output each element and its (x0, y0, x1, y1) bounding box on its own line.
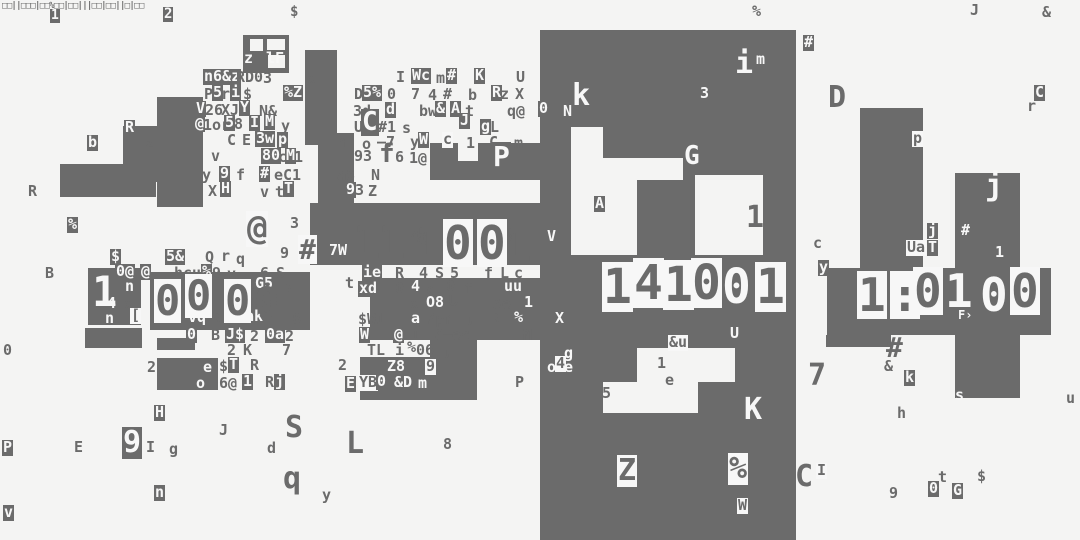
noise-glyph: 0 (395, 281, 404, 297)
noise-glyph: v (3, 505, 14, 521)
panel-digits-glyph: 0 (691, 258, 722, 308)
glitch-block (430, 143, 545, 180)
noise-glyph: n (125, 279, 134, 295)
noise-glyph: J (219, 423, 228, 439)
noise-glyph: 3 (290, 216, 299, 232)
noise-glyph: B (45, 266, 54, 282)
noise-glyph: 1 (657, 356, 666, 372)
noise-glyph: j (274, 374, 285, 390)
noise-glyph: & (884, 359, 893, 375)
noise-glyph: 5 (283, 280, 292, 296)
noise-glyph: X (208, 184, 217, 200)
noise-glyph: 6@ (219, 376, 237, 392)
glitch-block (85, 328, 142, 348)
noise-glyph: % (728, 453, 748, 485)
panel-digits-glyph: 0 (722, 262, 751, 312)
glitch-cutout (603, 158, 637, 255)
noise-glyph: 0 (538, 101, 549, 117)
noise-glyph: q (236, 252, 245, 268)
noise-glyph: B (211, 328, 220, 344)
noise-glyph: D (828, 82, 846, 114)
noise-glyph: 6 (292, 312, 301, 328)
right-digits-glyph: 0 (913, 267, 943, 315)
right-digits-glyph: 0 (980, 271, 1008, 319)
noise-glyph: q (283, 463, 301, 495)
noise-glyph: E (345, 376, 356, 392)
noise-glyph: B (490, 312, 499, 328)
noise-glyph: 5& (165, 249, 185, 265)
noise-glyph: m (418, 376, 427, 392)
noise-glyph: U (516, 70, 525, 86)
noise-glyph: 1 (995, 245, 1004, 261)
noise-glyph: T (927, 240, 938, 256)
noise-glyph: h (897, 406, 906, 422)
noise-glyph: 3w (255, 131, 275, 147)
middle-digits-glyph: 1 (353, 218, 381, 266)
noise-glyph: & (1042, 5, 1051, 21)
noise-glyph: 1@ (409, 151, 427, 167)
noise-glyph: x (307, 72, 316, 88)
noise-glyph: G—ec (434, 328, 470, 344)
noise-glyph: 3 (700, 86, 709, 102)
middle-digits-glyph: 0 (443, 219, 473, 267)
noise-glyph: c (813, 236, 822, 252)
noise-glyph: J (459, 113, 470, 129)
noise-glyph: 93 (354, 149, 372, 165)
noise-glyph: u (443, 346, 452, 362)
right-digits-glyph: 0 (1010, 267, 1040, 315)
noise-glyph: h (337, 135, 346, 151)
noise-glyph: d (267, 441, 276, 457)
noise-glyph: &u (668, 335, 688, 351)
noise-glyph: % (752, 4, 761, 20)
noise-glyph: t (345, 276, 354, 292)
noise-glyph: lF (266, 51, 284, 67)
noise-glyph: K (474, 68, 485, 84)
noise-glyph: % (513, 310, 524, 326)
noise-glyph: P (492, 142, 511, 171)
noise-glyph: c (442, 132, 453, 148)
glitch-screen: □□||□□□|□□%□□|□□|||□□|□□||□|□□12$%J&zlFn… (0, 0, 1080, 540)
noise-glyph: xd (358, 281, 378, 297)
noise-glyph: a (410, 311, 421, 327)
noise-glyph: j (927, 223, 938, 239)
glitch-cutout (603, 382, 698, 413)
noise-glyph: v (260, 185, 269, 201)
noise-glyph: 4 (410, 279, 421, 295)
noise-glyph: R (265, 375, 274, 391)
glitch-cutout (637, 348, 735, 382)
noise-glyph: [ (130, 308, 141, 324)
noise-glyph: 9 (425, 359, 436, 375)
noise-glyph: v (211, 149, 220, 165)
glitch-cutout (571, 127, 603, 255)
noise-glyph: p (912, 131, 923, 147)
noise-glyph: k (904, 370, 915, 386)
noise-glyph: G (952, 483, 963, 499)
noise-glyph: J (970, 3, 979, 19)
noise-glyph: M (264, 114, 275, 130)
noise-glyph: s (955, 388, 964, 404)
noise-glyph: 1 (746, 202, 764, 234)
noise-glyph: k (572, 80, 590, 112)
noise-glyph: r (1027, 99, 1036, 115)
noise-glyph: □□||□□□|□□%□□|□□|||□□|□□||□|□□ (2, 2, 144, 11)
noise-glyph: I (396, 70, 405, 86)
middle-digits-glyph: 1 (504, 221, 532, 269)
noise-glyph: V (547, 229, 556, 245)
panel-digits-glyph: 1 (663, 260, 694, 310)
noise-glyph: m (756, 52, 765, 68)
left-digits-glyph: 0 (254, 281, 279, 325)
noise-glyph: %Z (283, 85, 303, 101)
noise-glyph: y (322, 488, 331, 504)
middle-digits-glyph: 0 (477, 219, 507, 267)
noise-glyph: n (154, 485, 165, 501)
noise-glyph: T (283, 181, 294, 197)
noise-glyph: A (594, 196, 605, 212)
noise-glyph: U (449, 294, 458, 310)
noise-glyph: z (500, 87, 509, 103)
noise-glyph: 8 (443, 437, 452, 453)
glitch-block (60, 164, 156, 197)
left-digits-glyph: 1 (92, 270, 117, 314)
noise-glyph: # (298, 235, 317, 264)
noise-glyph: % (407, 340, 416, 356)
noise-glyph: 6 (395, 150, 404, 166)
noise-glyph: &D (394, 375, 412, 391)
noise-glyph: P (515, 375, 524, 391)
noise-glyph: Z (617, 455, 637, 487)
noise-glyph: C (795, 461, 813, 493)
noise-glyph: X (515, 87, 524, 103)
noise-glyph: R (124, 120, 135, 136)
glitch-cutout (637, 158, 683, 180)
noise-glyph: # (259, 166, 270, 182)
noise-glyph: U (729, 326, 740, 342)
noise-glyph: f (464, 281, 473, 297)
noise-glyph: Y (239, 100, 250, 116)
noise-glyph: t (938, 470, 947, 486)
panel-digits-glyph: 1 (602, 262, 633, 312)
panel-digits-glyph: 4 (633, 258, 664, 308)
noise-glyph: # (803, 35, 814, 51)
noise-glyph: 9 (212, 266, 221, 282)
noise-glyph: b (87, 135, 98, 151)
left-digits-glyph: 0 (224, 279, 251, 323)
noise-glyph: uu (504, 279, 522, 295)
noise-glyph: 0 (3, 343, 12, 359)
noise-glyph: R (28, 184, 37, 200)
noise-glyph: 1 (294, 150, 303, 166)
noise-glyph: z (145, 136, 154, 152)
noise-glyph: G (683, 143, 701, 170)
noise-glyph: 2 (147, 360, 156, 376)
noise-glyph: 7W (328, 243, 348, 259)
noise-glyph: i (735, 48, 753, 80)
left-digits-glyph: 0 (154, 279, 181, 323)
noise-glyph: r (221, 249, 230, 265)
noise-glyph: q@ (507, 104, 525, 120)
noise-glyph: m (514, 136, 523, 152)
noise-glyph: K (744, 394, 762, 426)
noise-glyph: 7 (411, 87, 420, 103)
noise-glyph: L (346, 428, 364, 460)
noise-glyph: RD0 (236, 70, 263, 86)
noise-glyph: Z (368, 184, 377, 200)
noise-glyph: I (816, 463, 827, 479)
panel-digits-glyph: 1 (755, 262, 786, 312)
noise-glyph: 7 (282, 343, 291, 359)
noise-glyph: N (563, 104, 572, 120)
noise-glyph: # (960, 223, 971, 239)
noise-glyph: T (228, 357, 239, 373)
noise-glyph: E (242, 133, 251, 149)
noise-glyph: d (385, 102, 396, 118)
noise-glyph: z (244, 51, 253, 67)
noise-glyph: 7 (808, 360, 826, 392)
noise-glyph: # (446, 68, 457, 84)
noise-glyph: P (2, 440, 13, 456)
noise-glyph: 9 (280, 246, 289, 262)
left-digits-glyph: 0 (185, 274, 212, 318)
noise-glyph: X (555, 311, 564, 327)
noise-glyph: 3 (263, 71, 272, 87)
noise-glyph: 1 (466, 136, 475, 152)
noise-glyph: 3 (355, 183, 364, 199)
noise-glyph: % (67, 217, 78, 233)
noise-glyph: @ (246, 211, 268, 247)
noise-glyph: $ (290, 5, 298, 20)
noise-glyph: e (564, 360, 573, 376)
noise-glyph: u (1066, 391, 1075, 407)
noise-glyph: TL (367, 343, 385, 359)
noise-glyph: o (196, 376, 205, 392)
noise-glyph: W (418, 132, 429, 148)
noise-glyph: j (985, 170, 1003, 202)
noise-glyph: O8 (425, 295, 445, 311)
noise-glyph: f (236, 168, 245, 184)
noise-glyph: f (379, 141, 395, 168)
glitch-block (305, 50, 337, 145)
noise-glyph: C (227, 133, 236, 149)
noise-glyph: @ (140, 264, 151, 280)
noise-glyph: 1 (50, 9, 60, 23)
noise-glyph: E (74, 440, 83, 456)
right-digits-glyph: 1 (945, 267, 973, 315)
right-digits-glyph: 1 (857, 271, 887, 319)
noise-glyph: 0 (928, 481, 939, 497)
noise-glyph: 0 (376, 374, 387, 390)
noise-glyph: 2 (338, 358, 347, 374)
middle-digits-glyph: 1 (415, 220, 443, 268)
glitch-block (826, 335, 891, 347)
noise-glyph: 9 (889, 486, 898, 502)
noise-glyph: W (737, 498, 748, 514)
noise-glyph: H (154, 405, 165, 421)
noise-glyph: 1 (242, 374, 253, 390)
noise-glyph: M (523, 328, 532, 344)
noise-glyph: Ua (906, 240, 926, 256)
noise-glyph: 5 (602, 386, 611, 402)
noise-glyph: $ (219, 359, 228, 375)
noise-glyph: $ (977, 469, 986, 485)
noise-glyph: 9 (122, 427, 142, 459)
noise-glyph: C (361, 109, 379, 136)
noise-glyph: S (285, 412, 303, 444)
middle-digits-glyph: 1 (378, 218, 406, 266)
noise-glyph: 0 (186, 327, 197, 343)
noise-glyph: g (169, 442, 178, 458)
noise-glyph: 2 (163, 7, 173, 22)
noise-glyph: H (220, 181, 231, 197)
noise-glyph: & (435, 101, 446, 117)
noise-glyph: e (665, 373, 674, 389)
noise-glyph: 5% (362, 85, 382, 101)
noise-glyph: I (146, 440, 155, 456)
noise-glyph: Wc (411, 68, 431, 84)
noise-glyph: 1 (523, 295, 534, 311)
noise-glyph: y (818, 260, 829, 276)
